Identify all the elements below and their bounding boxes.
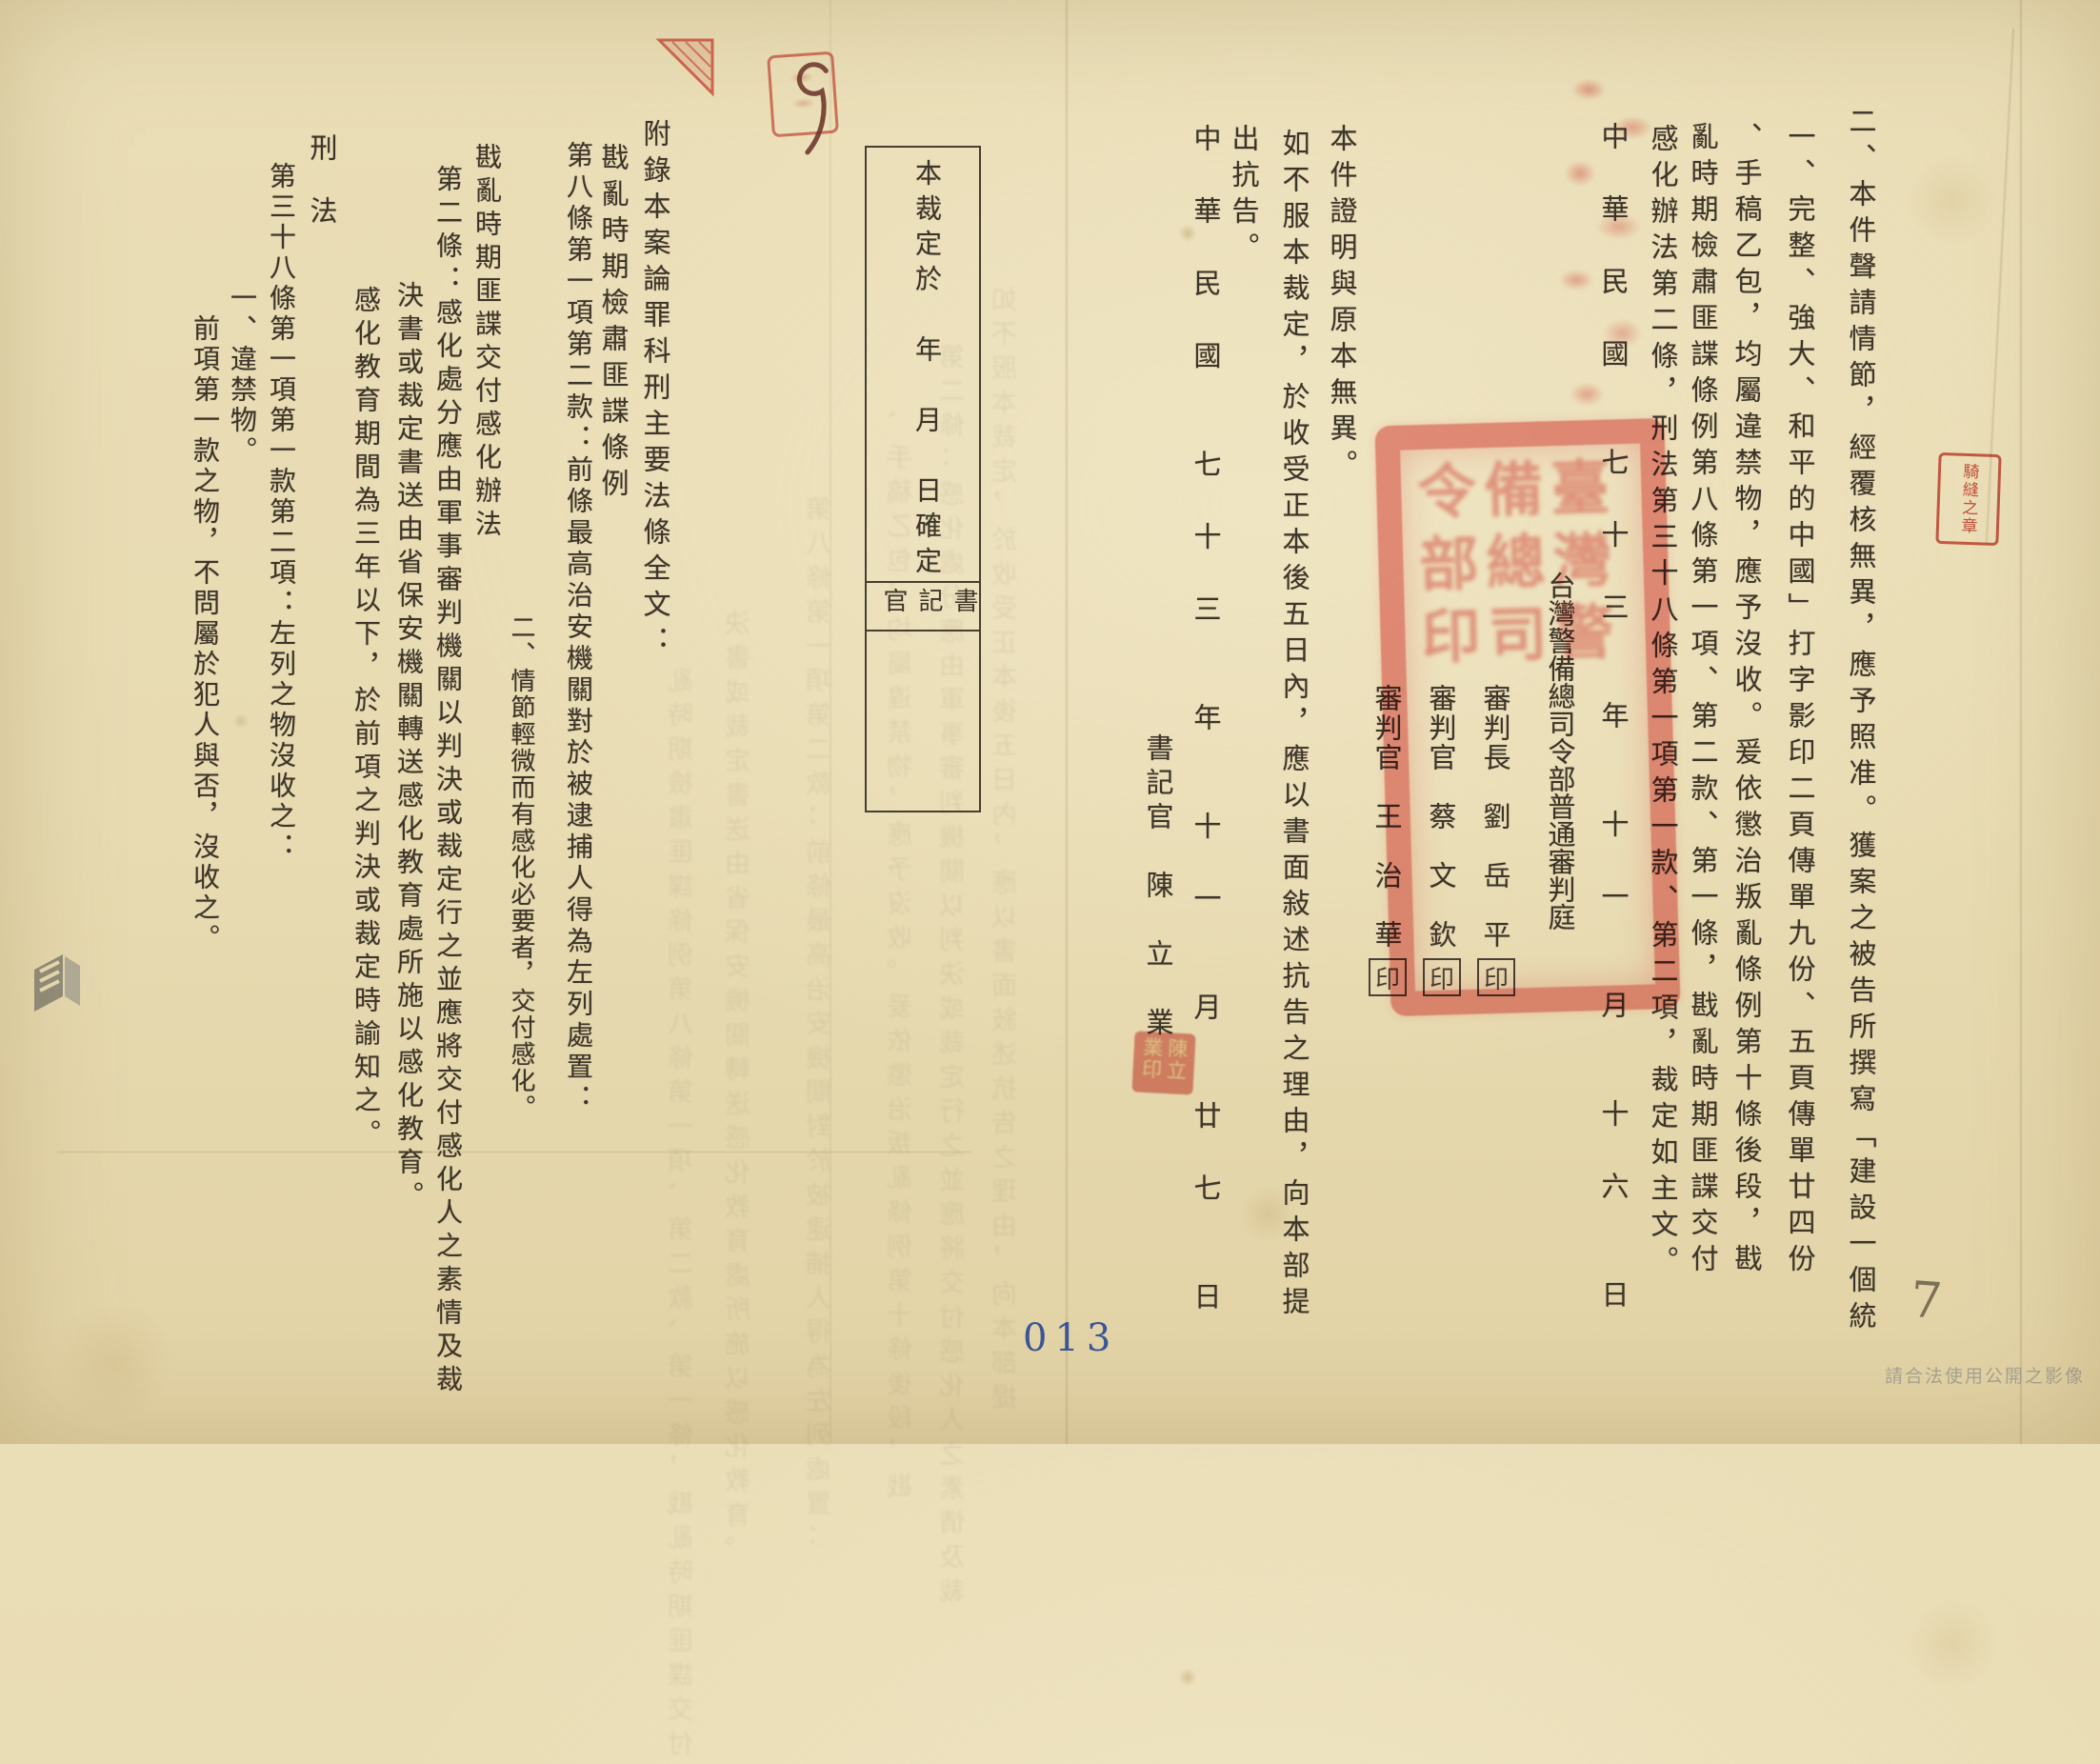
certify-line: 本件證明與原本無異。 bbox=[1325, 124, 1357, 486]
page-number-stamp: 013 bbox=[1023, 1316, 1118, 1360]
box-clerk-label: 書記官 bbox=[876, 588, 982, 626]
ruling-line-2: 一、完整、強大、和平的中國」打字影印二頁傳單九份、五頁傳單廿四份 bbox=[1783, 122, 1815, 1280]
law3-article: 第三十八條第一項第一款第二項：左列之物沒收之： bbox=[264, 162, 296, 863]
law1-item: 二、情節輕微而有感化必要者，交付感化。 bbox=[505, 614, 537, 1121]
box-divider bbox=[867, 581, 979, 583]
archive-logo bbox=[21, 941, 91, 1029]
ruling-line-3: 、手稿乙包，均屬違禁物，應予沒收。爰依懲治叛亂條例第十條後段，戡 bbox=[1730, 122, 1762, 1280]
law2-paragraph-2: 感化教育期間為三年以下，於前項之判決或裁定時諭知之。 bbox=[349, 286, 381, 1153]
law2-article-cont: 決書或裁定書送由省保安機關轉送感化教育處所施以感化教育。 bbox=[391, 281, 424, 1214]
appeal-line-2: 出抗告。 bbox=[1227, 124, 1259, 269]
right-edge-crease bbox=[2019, 0, 2023, 1444]
bleedthrough-text: 第八條第一項第二款：前條最高治安機關對於被逮捕人得為左列處置： bbox=[805, 495, 837, 1558]
appeal-line-1: 如不服本裁定，於收受正本後五日內，應以書面敍述抗告之理由，向本部提 bbox=[1277, 129, 1310, 1323]
receipt-stamp bbox=[768, 50, 850, 154]
law1-name: 戡亂時期檢肅匪諜條例 bbox=[596, 143, 629, 505]
law1-article: 第八條第一項第二款：前條最高治安機關對於被逮捕人得為左列處置： bbox=[561, 141, 593, 1115]
bleedthrough-text: 亂時期檢肅匪諜條例第八條第一項、第二款、第一條，戡亂時期匪諜交付 bbox=[667, 667, 699, 1764]
certify-date: 中 華 民 國 七 十 三 年 十 一 月 廿 七 日 bbox=[1189, 124, 1221, 1318]
law2-name: 戡亂時期匪諜交付感化辦法 bbox=[470, 143, 502, 543]
archive-watermark: 請合法使用公開之影像 bbox=[1885, 1362, 2085, 1388]
law3-paragraph-2: 前項第一款之物，不問屬於犯人與否，沒收之。 bbox=[188, 314, 220, 954]
clerk-red-seal-glyphs: 陳立業印 bbox=[1138, 1036, 1190, 1091]
seam-seal: 騎縫之章 bbox=[1935, 452, 2001, 546]
handwritten-page-number: 7 bbox=[1909, 1272, 1944, 1331]
bleedthrough-text: 如不服本裁定，於收受正本後五日內，應以書面敍述抗告之理由，向本部提 bbox=[990, 286, 1023, 1417]
official-seal: 臺灣警備總司令部印 bbox=[1374, 418, 1680, 1016]
clerk-red-seal: 陳立業印 bbox=[1131, 1031, 1195, 1094]
appendix-title: 附錄本案論罪科刑主要法條全文： bbox=[638, 119, 670, 662]
seam-seal-glyphs: 騎縫之章 bbox=[1955, 463, 1982, 536]
document-scan: { "cols": { "a": "二、本件聲請情節，經覆核無異，應予照准。獲案… bbox=[0, 0, 2100, 1444]
ruling-line-4: 亂時期檢肅匪諜條例第八條第一項、第二款、第一條，戡亂時期匪諜交付 bbox=[1686, 122, 1718, 1280]
bleedthrough-text: 決書或裁定書送由省保安機關轉送感化教育處所施以感化教育。 bbox=[724, 610, 756, 1570]
ruling-line-1: 二、本件聲請情節，經覆核無異，應予照准。獲案之被告所撰寫「建設一個統 bbox=[1844, 107, 1876, 1337]
law2-article: 第二條：感化處分應由軍事審判機關以判決或裁定行之並應將交付感化人之素情及裁 bbox=[430, 165, 463, 1398]
handwritten-nine bbox=[779, 51, 846, 158]
clerk-name: 書記官 陳 立 業 bbox=[1141, 733, 1173, 1042]
center-fold-crease bbox=[1065, 0, 1069, 1444]
law3-item: 一、違禁物。 bbox=[225, 284, 257, 467]
triangle-corner-stamp bbox=[655, 36, 716, 97]
finalization-box: 本裁定於 年 月 日確定 書記官 bbox=[865, 146, 981, 812]
finalization-line: 本裁定於 年 月 日確定 bbox=[907, 159, 945, 582]
law3-name: 刑 法 bbox=[305, 133, 337, 228]
box-divider bbox=[867, 630, 979, 631]
official-seal-glyphs: 臺灣警備總司令部印 bbox=[1406, 456, 1612, 700]
